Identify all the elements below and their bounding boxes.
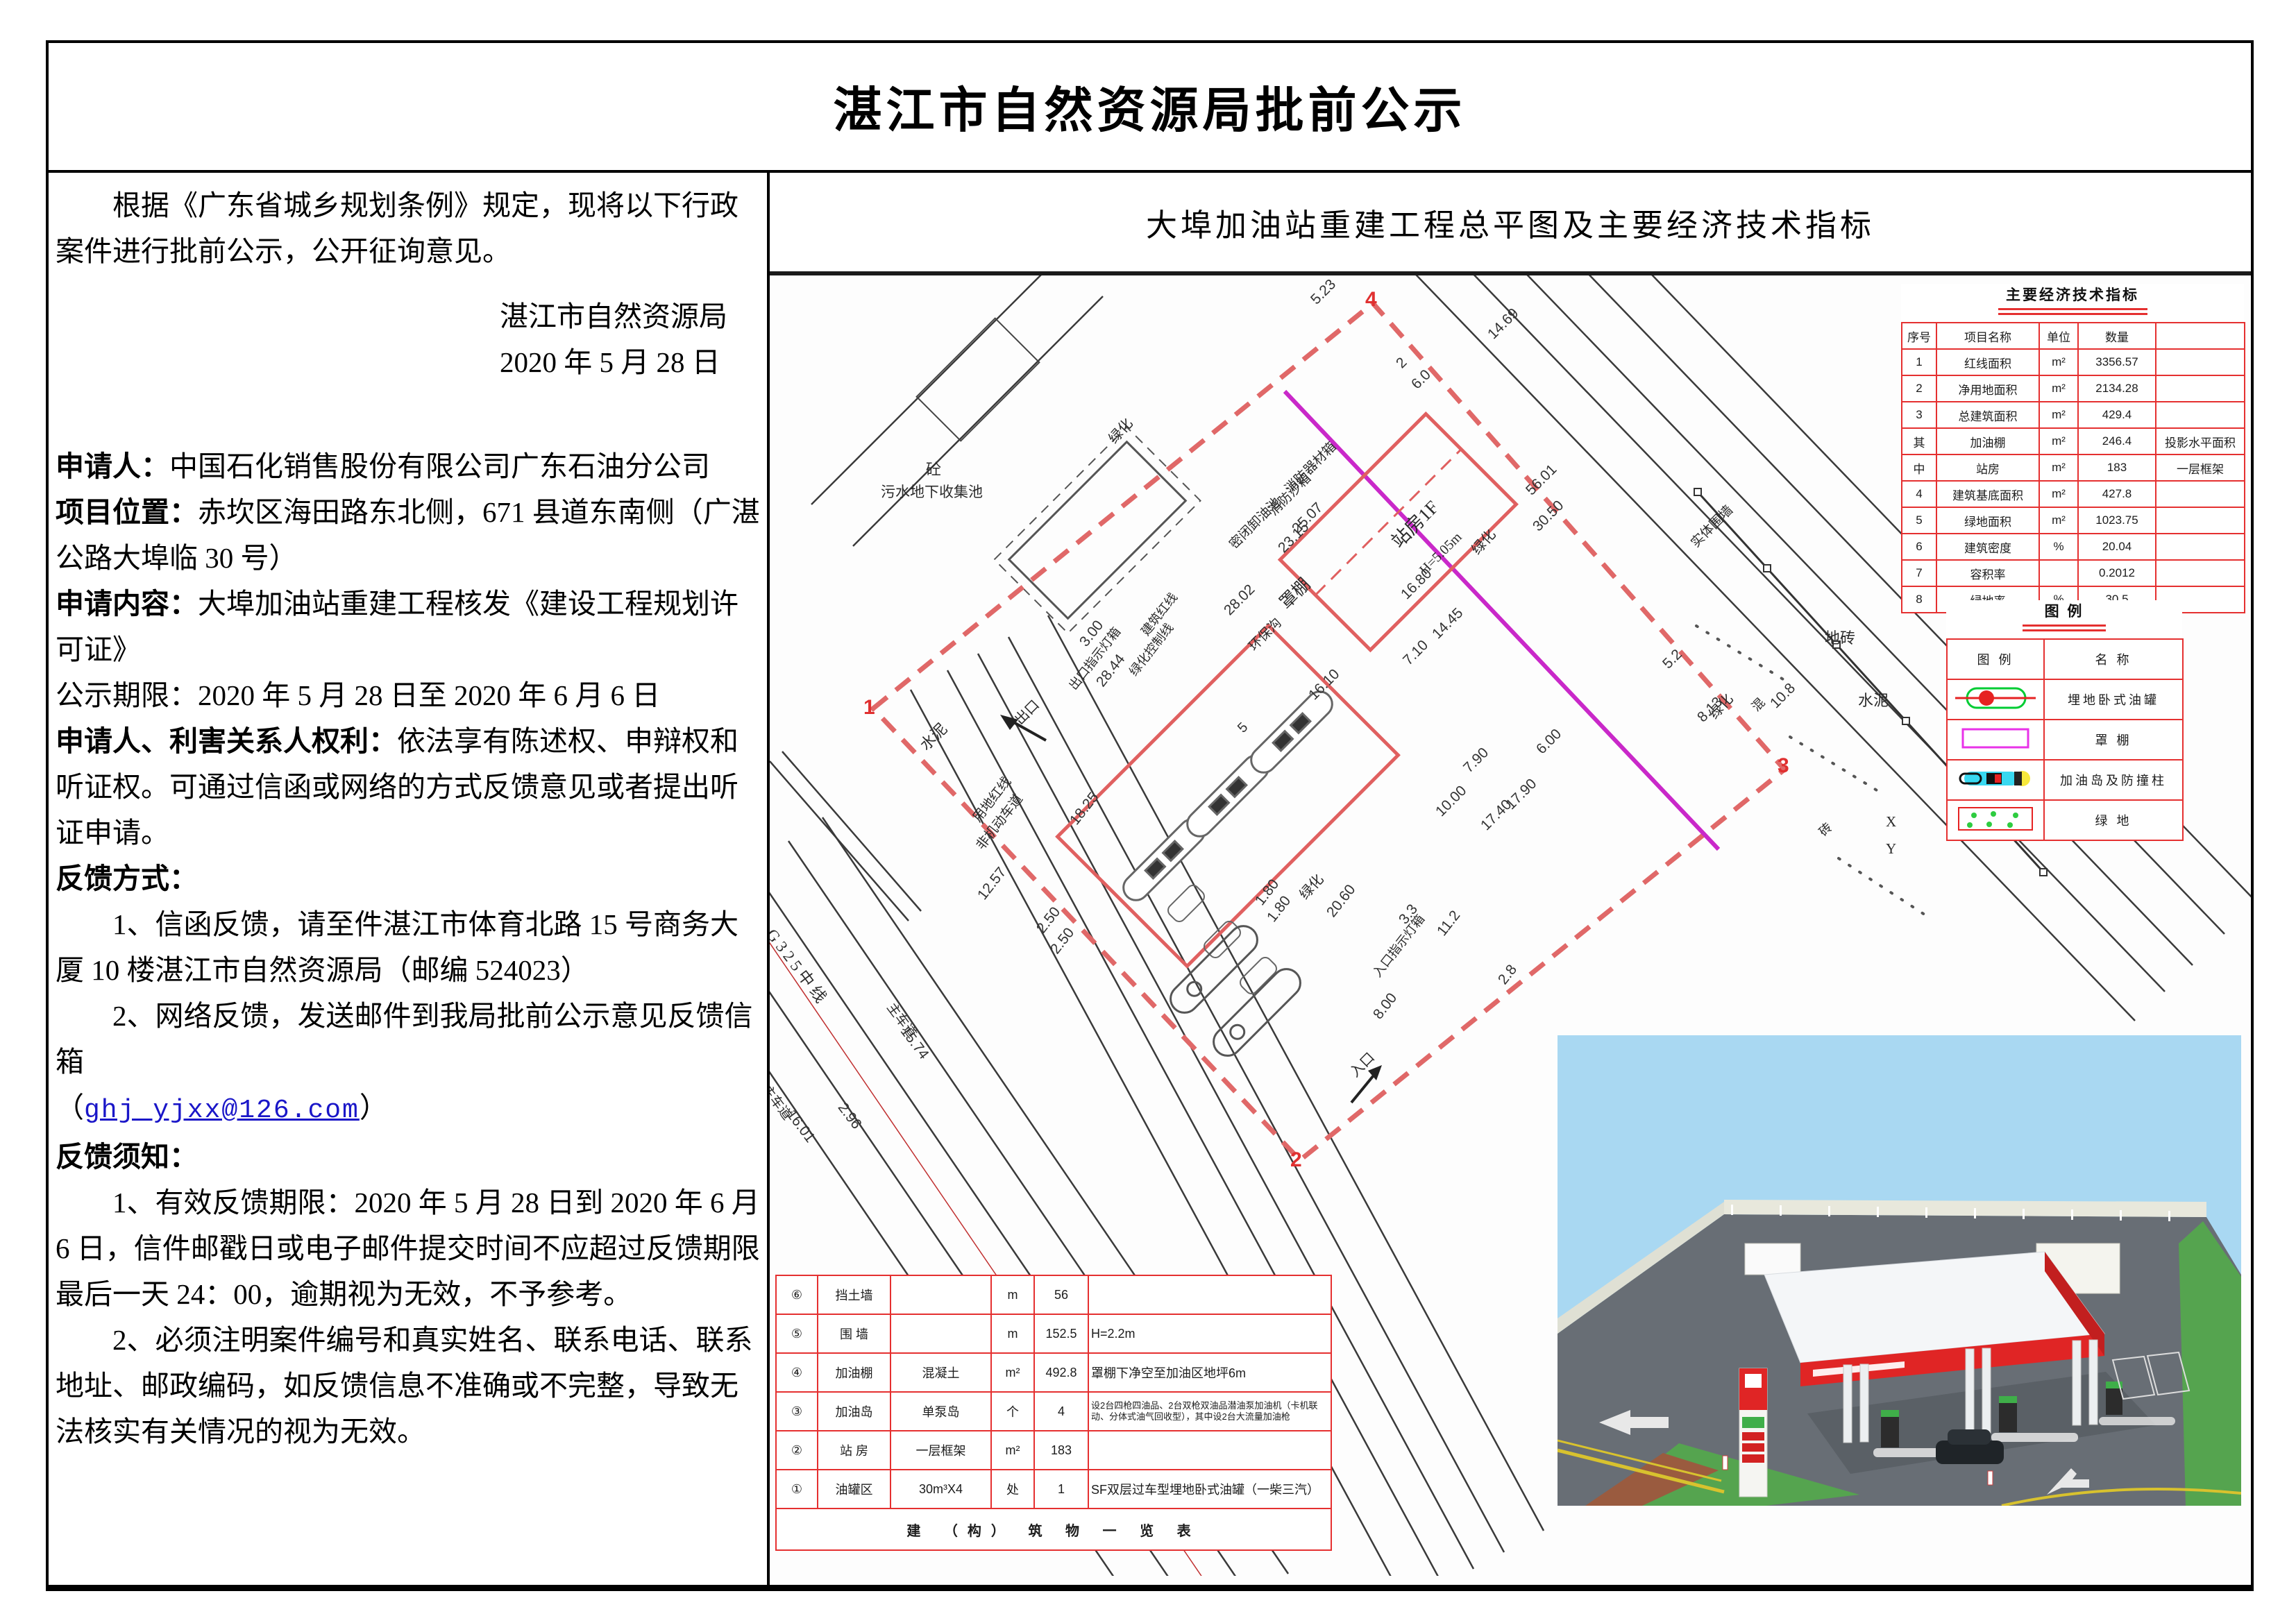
table-cell: 6 — [1902, 534, 1936, 560]
table-cell — [2156, 375, 2245, 402]
table-cell: m² — [2039, 375, 2078, 402]
structure-cell-name: 油罐区 — [818, 1470, 890, 1509]
dimension-label: 18.25 — [1067, 790, 1102, 829]
plan-text-label: 出口 — [1009, 695, 1043, 729]
table-cell: m² — [2039, 507, 2078, 534]
canopy-symbol-icon — [1953, 724, 2038, 753]
table-row: 4建筑基底面积m²427.8 — [1902, 481, 2245, 507]
table-cell: m² — [2039, 454, 2078, 481]
dimension-label: 16.01 — [783, 1107, 818, 1146]
structure-row: ②站 房一层框架m²183 — [776, 1431, 1331, 1470]
plan-text-label: 入口指示灯箱 — [1368, 910, 1428, 980]
table-cell — [2156, 507, 2245, 534]
table-cell: 建筑基底面积 — [1936, 481, 2039, 507]
structure-cell-qty: 492.8 — [1034, 1353, 1088, 1392]
dimension-label: 16.10 — [1306, 666, 1343, 704]
plan-text-label: 实体围墙 — [1686, 500, 1737, 551]
table-cell: % — [2039, 534, 2078, 560]
plan-text-label: Y — [1886, 840, 1896, 858]
feedback-method-item2: 2、网络反馈，发送邮件到我局批前公示意见反馈信箱 — [56, 993, 760, 1085]
plan-text-label: 混 — [1747, 693, 1769, 715]
paren-close: ） — [360, 1091, 388, 1123]
legend-title: 图 例 — [1946, 600, 2182, 621]
feedback-method-heading: 反馈方式： — [56, 856, 760, 901]
field-label: 公示期限： — [56, 679, 198, 711]
signature-date: 2020 年 5 月 28 日 — [500, 339, 760, 385]
field-label: 项目位置： — [56, 496, 198, 528]
table-cell: 1023.75 — [2078, 507, 2156, 534]
feedback-method-item1: 1、信函反馈，请至件湛江市体育北路 15 号商务大厦 10 楼湛江市自然资源局（… — [56, 901, 760, 993]
case-field: 项目位置：赤坎区海田路东北侧，671 县道东南侧（广湛公路大埠临 30 号） — [56, 489, 760, 581]
structure-cell-unit: 个 — [991, 1392, 1034, 1431]
structure-cell-no: ⑤ — [776, 1314, 818, 1353]
dimension-label: 2.96 — [834, 1100, 865, 1132]
structure-cell-name: 站 房 — [818, 1431, 890, 1470]
table-row: 6建筑密度%20.04 — [1902, 534, 2245, 560]
case-fields: 申请人：中国石化销售股份有限公司广东石油分公司项目位置：赤坎区海田路东北侧，67… — [56, 443, 760, 856]
table-cell: 3356.57 — [2078, 349, 2156, 375]
dimension-label: 20.60 — [1324, 882, 1359, 921]
table-cell: 总建筑面积 — [1936, 402, 2039, 428]
table-cell — [2156, 323, 2245, 349]
table-cell: 2134.28 — [2078, 375, 2156, 402]
plan-text-label: 污水地下收集池 — [881, 481, 983, 502]
boundary-corner-marker: 2 — [1290, 1148, 1302, 1172]
paren-open: （ — [56, 1091, 84, 1123]
table-cell: 20.04 — [2078, 534, 2156, 560]
green-symbol-icon — [1953, 804, 2038, 833]
table-cell: 8 — [1902, 586, 1936, 613]
drawing-panel: 大埠加油站重建工程总平图及主要经济技术指标 — [770, 173, 2251, 1585]
table-cell: 2 — [1902, 375, 1936, 402]
table-cell: 站房 — [1936, 454, 2039, 481]
plan-text-label: 环保沟 — [1244, 613, 1285, 654]
dimension-label: 2.8 — [1495, 962, 1521, 988]
econ-indicators-box: 主要经济技术指标 序号项目名称单位数量1红线面积m²3356.572净用地面积m… — [1901, 284, 2244, 613]
dimension-label: 12.57 — [974, 865, 1010, 903]
plan-text-label: 绿化 — [1103, 413, 1136, 447]
render-3d — [1558, 1035, 2241, 1506]
legend-symbol — [1947, 800, 2044, 840]
plan-text-label: 砖 — [1814, 818, 1836, 840]
table-cell: m² — [2039, 402, 2078, 428]
table-row: 1红线面积m²3356.57 — [1902, 349, 2245, 375]
structure-row: ④加油棚混凝土m²492.8罩棚下净空至加油区地坪6m — [776, 1353, 1331, 1392]
table-cell: 429.4 — [2078, 402, 2156, 428]
structure-row: ①油罐区30m³X4处1SF双层过车型埋地卧式油罐（一柴三汽） — [776, 1470, 1331, 1509]
structure-row: ⑤围 墙m152.5H=2.2m — [776, 1314, 1331, 1353]
island-symbol-icon — [1953, 764, 2038, 793]
table-cell: 7 — [1902, 560, 1936, 586]
table-cell: 单位 — [2039, 323, 2078, 349]
legend-symbol — [1947, 760, 2044, 800]
structure-cell-spec — [890, 1275, 991, 1314]
dimension-label: 14.69 — [1485, 305, 1522, 343]
table-cell: 加油棚 — [1936, 428, 2039, 454]
dimension-label: 5.23 — [1308, 276, 1340, 308]
legend-row: 埋地卧式油罐 — [1947, 679, 2183, 720]
dimension-label: 15.74 — [897, 1023, 932, 1062]
feedback-notice-heading: 反馈须知： — [56, 1134, 760, 1180]
dimension-label: 10.00 — [1433, 783, 1470, 820]
structure-cell-remark: SF双层过车型埋地卧式油罐（一柴三汽） — [1088, 1470, 1331, 1509]
plan-text-label: 水泥 — [1858, 688, 1889, 711]
table-cell: 数量 — [2078, 323, 2156, 349]
dimension-label: 56.01 — [1523, 461, 1560, 499]
boundary-corner-marker: 1 — [863, 696, 875, 720]
table-row: 其加油棚m²246.4投影水平面积 — [1902, 428, 2245, 454]
dimension-label: 16.80 — [1398, 566, 1435, 603]
field-label: 申请内容： — [56, 588, 198, 620]
table-cell: 图 例 — [1947, 639, 2044, 679]
dimension-label: 6.00 — [1533, 726, 1565, 758]
notice-page: 湛江市自然资源局批前公示 根据《广东省城乡规划条例》规定，现将以下行政案件进行批… — [46, 40, 2254, 1591]
legend-name: 加油岛及防撞柱 — [2044, 760, 2183, 800]
legend-name: 罩 棚 — [2044, 720, 2183, 760]
structure-cell-unit: m² — [991, 1353, 1034, 1392]
dimension-label: 14.45 — [1429, 605, 1467, 643]
structure-cell-no: ③ — [776, 1392, 818, 1431]
case-field: 申请人、利害关系人权利：依法享有陈述权、申辩权和听证权。可通过信函或网络的方式反… — [56, 718, 760, 856]
table-cell: 投影水平面积 — [2156, 428, 2245, 454]
table-cell: 其 — [1902, 428, 1936, 454]
table-cell: 一层框架 — [2156, 454, 2245, 481]
econ-indicators-title: 主要经济技术指标 — [1901, 284, 2244, 305]
structure-cell-spec: 单泵岛 — [890, 1392, 991, 1431]
table-cell: 名 称 — [2044, 639, 2183, 679]
table-cell: m² — [2039, 349, 2078, 375]
structure-cell-remark — [1088, 1431, 1331, 1470]
legend-box: 图 例 图 例名 称埋地卧式油罐罩 棚加油岛及防撞柱绿 地 — [1946, 600, 2182, 841]
plan-text-label: 站房1F — [1384, 493, 1444, 553]
table-cell — [2156, 481, 2245, 507]
table-cell: 序号 — [1902, 323, 1936, 349]
structure-cell-qty: 1 — [1034, 1470, 1088, 1509]
plan-text-label: 入口 — [1344, 1047, 1378, 1081]
table-cell: 项目名称 — [1936, 323, 2039, 349]
table-cell: 1 — [1902, 349, 1936, 375]
structure-cell-remark: 罩棚下净空至加油区地坪6m — [1088, 1353, 1331, 1392]
plan-text-label: G 3 2 5 中 线 — [770, 923, 834, 1007]
signature-org: 湛江市自然资源局 — [500, 294, 760, 339]
table-cell — [2156, 534, 2245, 560]
structures-box: ⑥挡土墙m56⑤围 墙m152.5H=2.2m④加油棚混凝土m²492.8罩棚下… — [775, 1275, 1331, 1551]
dimension-label: 17.90 — [1503, 776, 1540, 813]
structures-footer-row: 建 （构） 筑 物 一 览 表 — [776, 1509, 1331, 1550]
structure-cell-no: ⑥ — [776, 1275, 818, 1314]
legend-symbol — [1947, 679, 2044, 720]
structure-cell-no: ① — [776, 1470, 818, 1509]
plan-text-label: 绿化 — [1294, 869, 1327, 903]
structure-cell-no: ④ — [776, 1353, 818, 1392]
dimension-label: 7.90 — [1460, 745, 1492, 776]
structure-cell-remark: H=2.2m — [1088, 1314, 1331, 1353]
dimension-label: 11.2 — [1434, 908, 1464, 940]
structure-cell-name: 围 墙 — [818, 1314, 890, 1353]
drawing-title: 大埠加油站重建工程总平图及主要经济技术指标 — [770, 173, 2251, 275]
table-row: 序号项目名称单位数量 — [1902, 323, 2245, 349]
feedback-notice-item2: 2、必须注明案件编号和真实姓名、联系电话、联系地址、邮政编码，如反馈信息不准确或… — [56, 1317, 760, 1454]
dimension-label: 8.00 — [1370, 990, 1401, 1023]
structure-cell-remark — [1088, 1275, 1331, 1314]
econ-title-underline — [1998, 308, 2147, 315]
structure-cell-name: 加油岛 — [818, 1392, 890, 1431]
boundary-corner-marker: 4 — [1365, 288, 1377, 312]
table-cell — [2156, 402, 2245, 428]
site-plan-area: 砼污水地下收集池绿化绿化绿化绿化消防器材箱消防沙箱密闭卸油池站房1FH=5.05… — [770, 275, 2251, 1585]
dimension-label: 28.02 — [1221, 581, 1258, 619]
table-cell: 4 — [1902, 481, 1936, 507]
plan-text-label: 罩棚 — [1273, 572, 1315, 614]
table-row: 5绿地面积m²1023.75 — [1902, 507, 2245, 534]
structure-cell-name: 加油棚 — [818, 1353, 890, 1392]
structure-cell-no: ② — [776, 1431, 818, 1470]
legend-name: 绿 地 — [2044, 800, 2183, 840]
dimension-label: 30.50 — [1530, 498, 1567, 535]
table-cell: 0.2012 — [2078, 560, 2156, 586]
structures-table: ⑥挡土墙m56⑤围 墙m152.5H=2.2m④加油棚混凝土m²492.8罩棚下… — [775, 1275, 1332, 1551]
legend-table: 图 例名 称埋地卧式油罐罩 棚加油岛及防撞柱绿 地 — [1946, 638, 2184, 841]
structure-cell-spec: 一层框架 — [890, 1431, 991, 1470]
structure-cell-qty: 183 — [1034, 1431, 1088, 1470]
email-line: （ghj_yjxx@126.com） — [56, 1085, 760, 1134]
gas-station-render — [1558, 1035, 2241, 1506]
table-cell: 427.8 — [2078, 481, 2156, 507]
legend-title-underline — [2023, 624, 2106, 631]
table-row: 7容积率0.2012 — [1902, 560, 2245, 586]
dimension-label: 5.2 — [1660, 646, 1686, 672]
plan-text-label: 砼 — [926, 457, 941, 479]
plan-text-label: 绿化 — [1466, 524, 1499, 558]
page-title: 湛江市自然资源局批前公示 — [834, 71, 1467, 142]
legend-name: 埋地卧式油罐 — [2044, 679, 2183, 720]
table-cell: 246.4 — [2078, 428, 2156, 454]
table-row: 图 例名 称 — [1947, 639, 2183, 679]
structure-row: ⑥挡土墙m56 — [776, 1275, 1331, 1314]
notice-text-panel: 根据《广东省城乡规划条例》规定，现将以下行政案件进行批前公示，公开征询意见。 湛… — [49, 173, 770, 1585]
table-cell — [2156, 560, 2245, 586]
table-cell: 183 — [2078, 454, 2156, 481]
table-cell: 中 — [1902, 454, 1936, 481]
structure-cell-spec: 30m³X4 — [890, 1470, 991, 1509]
field-value: 中国石化销售股份有限公司广东石油分公司 — [169, 450, 710, 482]
structures-table-title: 建 （构） 筑 物 一 览 表 — [776, 1509, 1331, 1550]
field-label: 申请人： — [56, 450, 169, 482]
econ-indicators-table: 序号项目名称单位数量1红线面积m²3356.572净用地面积m²2134.283… — [1901, 322, 2245, 613]
plan-text-label: 地砖 — [1825, 626, 1855, 648]
table-cell: 容积率 — [1936, 560, 2039, 586]
table-cell — [2156, 349, 2245, 375]
table-cell: 3 — [1902, 402, 1936, 428]
structure-cell-qty: 152.5 — [1034, 1314, 1088, 1353]
table-row: 2净用地面积m²2134.28 — [1902, 375, 2245, 402]
table-cell: 建筑密度 — [1936, 534, 2039, 560]
dimension-label: 2 — [1393, 355, 1410, 372]
table-cell: m² — [2039, 428, 2078, 454]
legend-symbol — [1947, 720, 2044, 760]
dimension-label: 23.15 — [1275, 519, 1312, 556]
plan-text-label: X — [1886, 813, 1896, 831]
table-cell: 净用地面积 — [1936, 375, 2039, 402]
legend-row: 加油岛及防撞柱 — [1947, 760, 2183, 800]
feedback-email-link[interactable]: ghj_yjxx@126.com — [84, 1096, 360, 1125]
boundary-corner-marker: 3 — [1778, 754, 1789, 778]
tank-symbol-icon — [1953, 683, 2038, 713]
field-value: 2020 年 5 月 28 日至 2020 年 6 月 6 日 — [198, 679, 660, 711]
structure-cell-qty: 56 — [1034, 1275, 1088, 1314]
dimension-label: 7.10 — [1400, 637, 1432, 669]
feedback-notice-item1: 1、有效反馈期限：2020 年 5 月 28 日到 2020 年 6 月 6 日… — [56, 1180, 760, 1317]
structure-cell-remark: 设2台四枪四油品、2台双枪双油品潜油泵加油机（卡机联动、分体式油气回收型），其中… — [1088, 1392, 1331, 1431]
signature-block: 湛江市自然资源局 2020 年 5 月 28 日 — [56, 294, 760, 385]
structure-cell-unit: m — [991, 1275, 1034, 1314]
table-cell: 绿地面积 — [1936, 507, 2039, 534]
table-cell: 5 — [1902, 507, 1936, 534]
case-field: 公示期限：2020 年 5 月 28 日至 2020 年 6 月 6 日 — [56, 672, 760, 718]
table-cell — [2039, 560, 2078, 586]
case-field: 申请人：中国石化销售股份有限公司广东石油分公司 — [56, 443, 760, 489]
structure-cell-spec — [890, 1314, 991, 1353]
field-label: 申请人、利害关系人权利： — [56, 725, 397, 757]
structure-cell-qty: 4 — [1034, 1392, 1088, 1431]
dimension-label: 6.0 — [1408, 366, 1435, 393]
page-title-row: 湛江市自然资源局批前公示 — [49, 43, 2251, 170]
plan-text-label: 水泥 — [914, 717, 952, 755]
structure-cell-name: 挡土墙 — [818, 1275, 890, 1314]
dimension-label: 10.8 — [1767, 680, 1799, 712]
legend-row: 绿 地 — [1947, 800, 2183, 840]
structure-row: ③加油岛单泵岛个4设2台四枪四油品、2台双枪双油品潜油泵加油机（卡机联动、分体式… — [776, 1392, 1331, 1431]
structure-cell-spec: 混凝土 — [890, 1353, 991, 1392]
legend-row: 罩 棚 — [1947, 720, 2183, 760]
table-cell: m² — [2039, 481, 2078, 507]
table-row: 中站房m²183一层框架 — [1902, 454, 2245, 481]
dimension-label: 5 — [1235, 720, 1251, 736]
structure-cell-unit: m² — [991, 1431, 1034, 1470]
structure-cell-unit: m — [991, 1314, 1034, 1353]
intro-paragraph: 根据《广东省城乡规划条例》规定，现将以下行政案件进行批前公示，公开征询意见。 — [56, 182, 760, 274]
structure-cell-unit: 处 — [991, 1470, 1034, 1509]
table-cell: 红线面积 — [1936, 349, 2039, 375]
case-field: 申请内容：大埠加油站重建工程核发《建设工程规划许可证》 — [56, 581, 760, 672]
table-row: 3总建筑面积m²429.4 — [1902, 402, 2245, 428]
